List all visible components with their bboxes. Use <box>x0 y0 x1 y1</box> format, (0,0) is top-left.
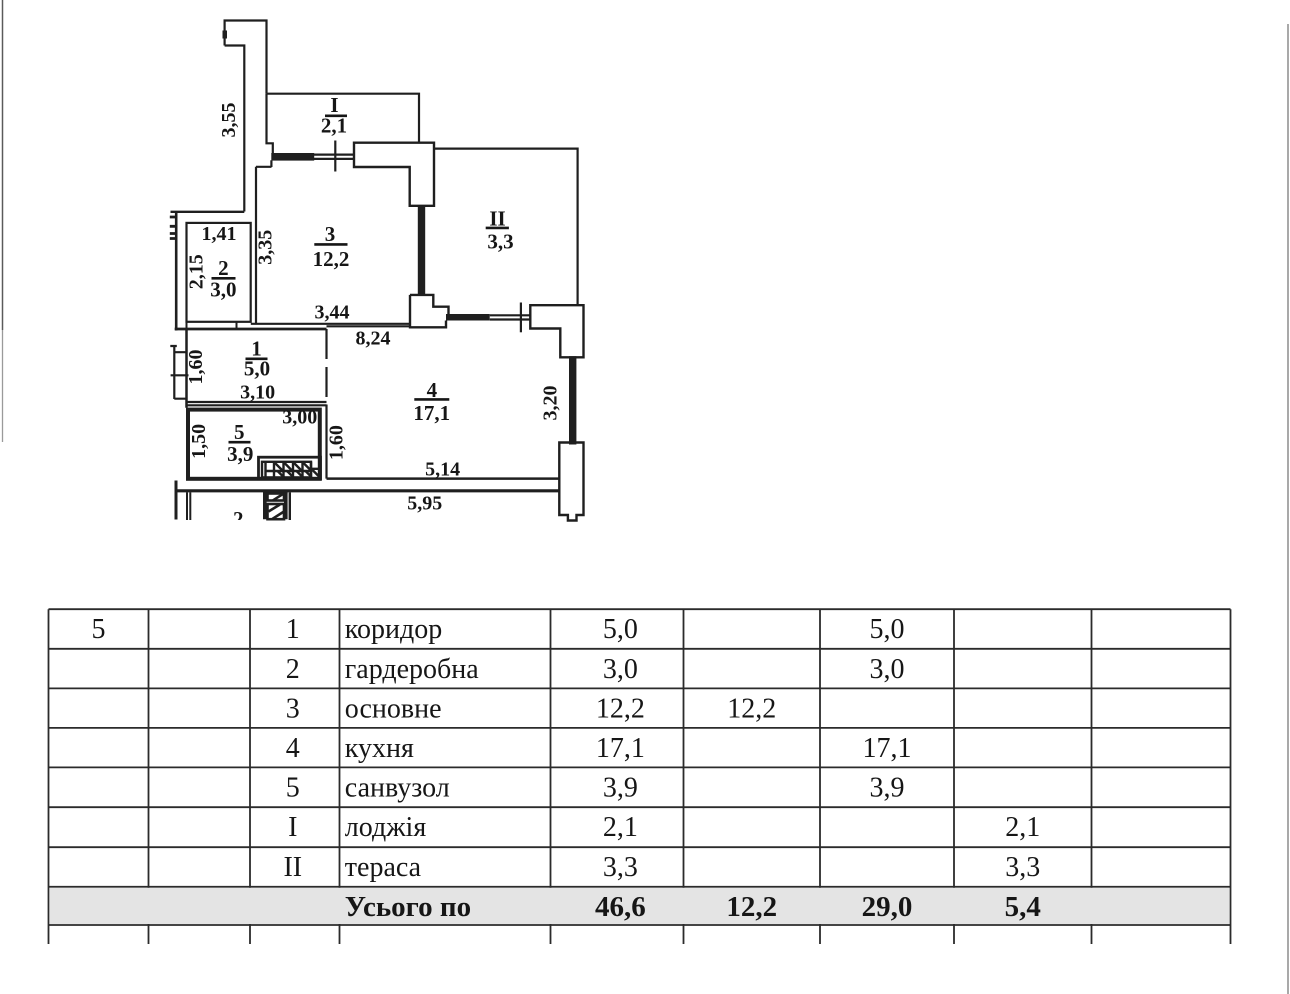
svg-text:лоджія: лоджія <box>345 812 427 843</box>
svg-text:3: 3 <box>325 222 336 246</box>
svg-text:I: I <box>288 812 297 843</box>
svg-text:Усього по: Усього по <box>345 891 471 923</box>
svg-text:1,41: 1,41 <box>202 223 237 245</box>
svg-text:17,1: 17,1 <box>863 733 912 764</box>
svg-text:гардеробна: гардеробна <box>345 654 479 685</box>
svg-text:5,0: 5,0 <box>870 614 905 645</box>
svg-text:29,0: 29,0 <box>862 891 913 923</box>
svg-text:тераса: тераса <box>345 852 422 883</box>
svg-text:12,2: 12,2 <box>596 693 645 724</box>
svg-text:8,24: 8,24 <box>356 328 391 350</box>
svg-text:5: 5 <box>92 614 106 645</box>
svg-text:3,9: 3,9 <box>227 442 253 466</box>
svg-text:3,9: 3,9 <box>870 772 905 803</box>
svg-text:12,2: 12,2 <box>313 247 350 271</box>
svg-text:17,1: 17,1 <box>413 401 450 425</box>
svg-text:3,44: 3,44 <box>315 301 350 323</box>
svg-text:5,4: 5,4 <box>1005 891 1041 923</box>
svg-text:17,1: 17,1 <box>596 733 645 764</box>
svg-text:3,3: 3,3 <box>603 852 638 883</box>
svg-text:2,1: 2,1 <box>1005 812 1040 843</box>
svg-text:46,6: 46,6 <box>595 891 646 923</box>
svg-text:3,0: 3,0 <box>603 654 638 685</box>
svg-text:3,20: 3,20 <box>540 386 562 421</box>
svg-text:5: 5 <box>286 772 300 803</box>
svg-text:кухня: кухня <box>345 733 414 764</box>
svg-text:коридор: коридор <box>345 614 442 645</box>
svg-text:2,1: 2,1 <box>603 812 638 843</box>
svg-text:2,1: 2,1 <box>321 114 347 138</box>
svg-text:2: 2 <box>286 654 300 685</box>
svg-text:3,35: 3,35 <box>255 230 277 265</box>
svg-text:1: 1 <box>286 614 300 645</box>
svg-text:3,3: 3,3 <box>1005 852 1040 883</box>
svg-text:5,0: 5,0 <box>244 357 270 381</box>
svg-text:1,60: 1,60 <box>325 425 347 460</box>
svg-text:4: 4 <box>286 733 300 764</box>
svg-text:3,00: 3,00 <box>282 407 317 429</box>
svg-text:1,60: 1,60 <box>185 350 207 385</box>
svg-text:12,2: 12,2 <box>727 693 776 724</box>
svg-text:3: 3 <box>286 693 300 724</box>
svg-text:5,95: 5,95 <box>407 493 442 515</box>
svg-text:основне: основне <box>345 693 442 724</box>
svg-text:1,50: 1,50 <box>188 424 210 459</box>
svg-text:3,0: 3,0 <box>210 278 236 302</box>
svg-text:3,3: 3,3 <box>487 230 513 254</box>
svg-text:3,10: 3,10 <box>240 382 275 404</box>
svg-text:II: II <box>283 852 302 883</box>
svg-text:5,14: 5,14 <box>425 458 460 480</box>
svg-text:3,0: 3,0 <box>870 654 905 685</box>
svg-text:3,9: 3,9 <box>603 772 638 803</box>
svg-text:5: 5 <box>234 420 245 444</box>
svg-text:3,55: 3,55 <box>218 102 240 137</box>
svg-text:5,0: 5,0 <box>603 614 638 645</box>
svg-text:2: 2 <box>218 256 229 280</box>
svg-text:санвузол: санвузол <box>345 772 450 803</box>
svg-text:2,15: 2,15 <box>186 254 208 289</box>
svg-text:12,2: 12,2 <box>726 891 777 923</box>
